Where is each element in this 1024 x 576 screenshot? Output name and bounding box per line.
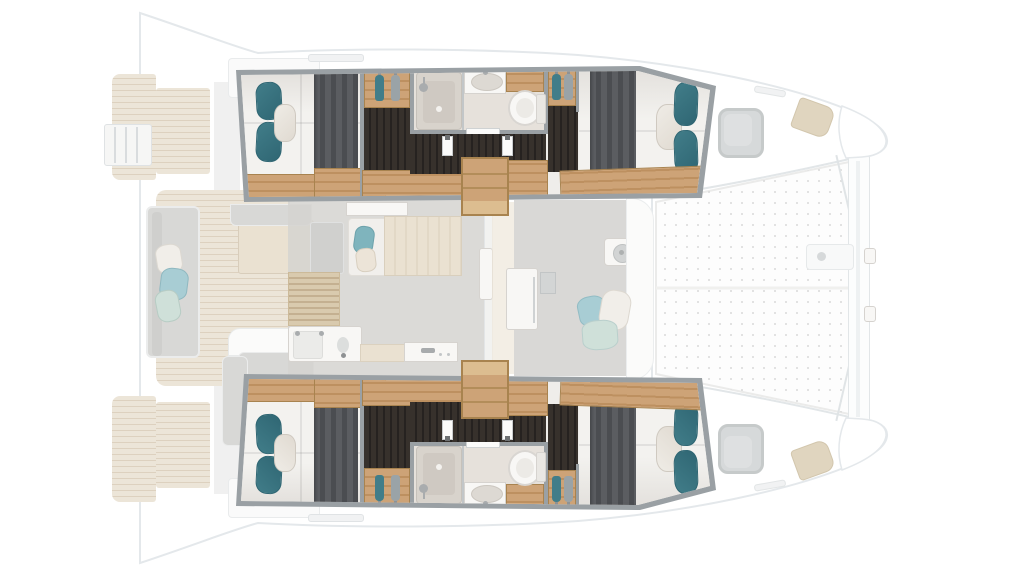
aft-cabin-blanket: [314, 72, 358, 174]
port-hull: [210, 60, 722, 220]
starboard-swim-platform: [112, 396, 156, 502]
shower: [416, 72, 462, 130]
cooktop-icon: [421, 348, 435, 353]
wardrobe: [548, 470, 576, 510]
clothes-hanger-icon: [375, 75, 384, 101]
port-deck-hatch: [718, 108, 764, 158]
stair-bottom-tread: [463, 201, 507, 214]
clothes-hanger-icon: [552, 74, 561, 100]
companionway-bench: [508, 160, 548, 200]
bathroom-door: [466, 441, 500, 448]
beam-fitting-port: [864, 248, 876, 264]
corridor-floor: [548, 106, 578, 172]
crossbeam-groove: [856, 161, 860, 417]
forward-crossbeam: [848, 152, 870, 426]
salon-forward-door: [479, 248, 493, 300]
cabin-door: [442, 136, 453, 156]
sink-icon: [471, 73, 503, 91]
companionway-bench: [508, 376, 548, 416]
corridor-floor: [548, 404, 578, 470]
beam-fitting-starboard: [864, 306, 876, 322]
starboard-hull: [210, 356, 722, 516]
cabin-door: [442, 420, 453, 440]
bathroom-wall: [410, 442, 414, 510]
salon-bench: [310, 222, 344, 274]
companionway-stairs: [461, 360, 509, 419]
port-transom-step: [156, 88, 210, 174]
shower: [416, 446, 462, 504]
aft-cabin-bench: [244, 376, 320, 402]
cabin-door: [502, 420, 513, 440]
shower-drain: [436, 106, 442, 112]
stair-bottom-tread: [463, 362, 507, 375]
faucet-icon: [295, 331, 300, 336]
sink-icon: [471, 485, 503, 503]
mast-step: [540, 272, 556, 294]
salon-pillow-cream: [355, 247, 378, 273]
clothes-hanger-icon: [391, 475, 400, 501]
anchor-roller: [817, 252, 826, 261]
starboard-transom-step: [156, 402, 210, 488]
wardrobe: [548, 66, 576, 106]
fwd-cockpit-pillow-mint: [581, 319, 619, 351]
clothes-hanger-icon: [564, 74, 573, 100]
shower-drain: [436, 464, 442, 470]
forward-cabin-pillow-teal: [673, 450, 699, 495]
clothes-hanger-icon: [564, 476, 573, 502]
bathroom-wall: [498, 442, 548, 446]
forward-cockpit-coaming: [626, 198, 654, 380]
bowsprit-bracket: [806, 244, 854, 270]
corridor-floor: [364, 402, 410, 468]
corridor-floor: [364, 108, 410, 174]
companionway-stairs: [461, 157, 509, 216]
fridge-handle: [533, 277, 535, 323]
companionway-louver-vent: [288, 272, 340, 326]
outdoor-fridge-module: [506, 268, 538, 330]
faucet-icon: [319, 331, 324, 336]
clothes-hanger-icon: [375, 475, 384, 501]
bathroom-wall: [410, 66, 414, 134]
clothes-hanger-icon: [552, 476, 561, 502]
aft-cabin-bench: [244, 174, 320, 200]
boarding-ladder-icon: [104, 124, 152, 166]
cabin-door: [502, 136, 513, 156]
clothes-hanger-icon: [391, 75, 400, 101]
toilet-cistern: [536, 94, 546, 124]
salon-dinette-table: [384, 216, 462, 276]
aft-cabin-pillow-white: [274, 434, 296, 472]
galley-fixture: [337, 337, 349, 353]
starboard-deck-hatch: [718, 424, 764, 474]
forward-cabin-pillow-teal: [673, 82, 699, 127]
toilet-cistern: [536, 452, 546, 482]
catamaran-floorplan: [0, 0, 1024, 576]
aft-cabin-pillow-white: [274, 104, 296, 142]
aft-cabin-blanket: [314, 402, 358, 504]
